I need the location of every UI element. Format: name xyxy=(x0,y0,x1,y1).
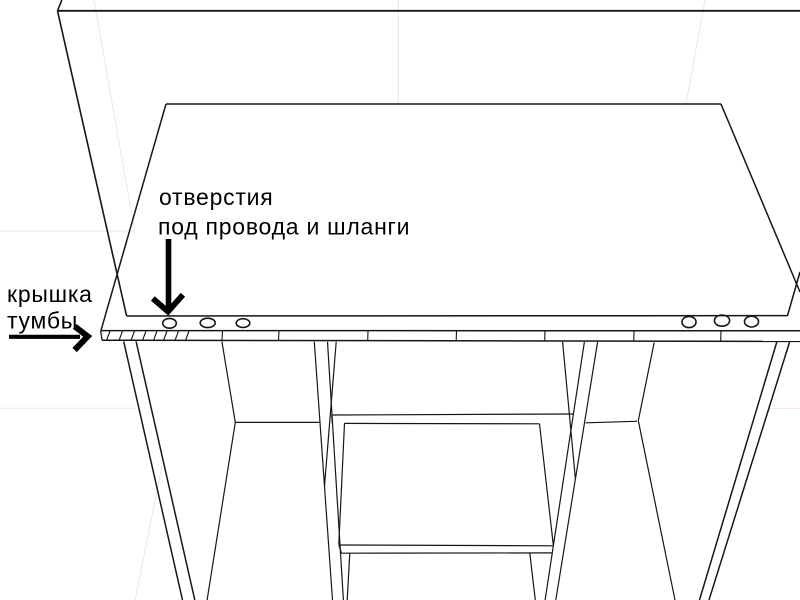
svg-text:крышка: крышка xyxy=(7,281,93,307)
svg-text:под провода и шланги: под провода и шланги xyxy=(158,214,410,240)
svg-text:тумбы: тумбы xyxy=(7,307,78,333)
svg-text:отверстия: отверстия xyxy=(159,184,273,210)
